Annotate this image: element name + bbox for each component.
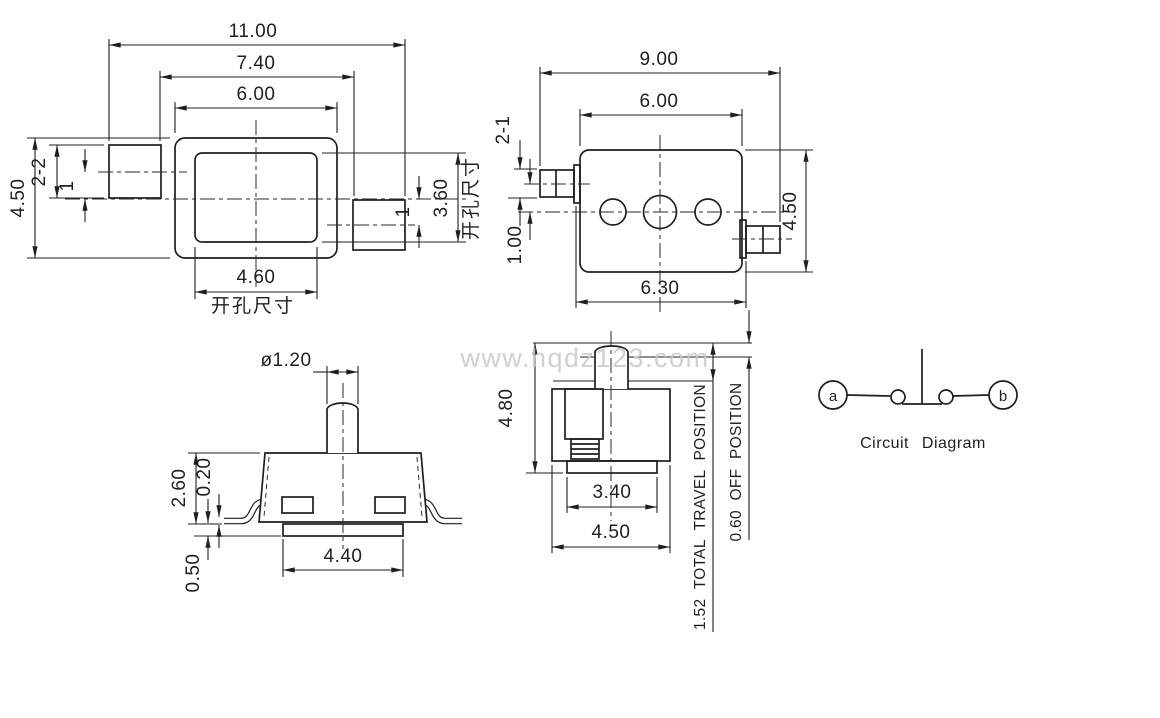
watermark: www.hqdz123.com (459, 343, 709, 373)
dim-pin-offset: 1.00 (505, 226, 526, 265)
dim-base-height: 0.50 (183, 554, 204, 593)
dim-cutout-width: 4.60 (237, 267, 276, 288)
dim-cutout-height: 3.60 (431, 179, 452, 218)
dim-front-base-width: 4.40 (324, 546, 363, 567)
side-base (567, 461, 657, 473)
dim-tab-span: 6.30 (641, 278, 680, 299)
dim-pin-body-width-lines (580, 109, 742, 146)
dim-pin-body-height: 4.50 (780, 192, 801, 231)
dim-pin-size-lines (508, 140, 537, 226)
switch-drawing-canvas: 11.00 7.40 6.00 4.50 2-2 1 (0, 0, 1160, 718)
cutout-label-right: 开孔尺寸 (460, 156, 482, 240)
dim-offset-right: 1 (393, 206, 414, 217)
dim-overall-width: 11.00 (229, 21, 278, 42)
contact-node-right (939, 390, 953, 404)
travel-note: 1.52 TOTAL TRAVEL POSITION (692, 384, 709, 630)
top-view-body-outline (109, 138, 405, 258)
pin-view-body-outline (580, 150, 742, 272)
dim-pin-overall-width: 9.00 (640, 49, 679, 70)
dim-pin-body-width: 6.00 (640, 91, 679, 112)
dim-pin-size: 2-1 (493, 116, 514, 145)
dim-offset-left: 1 (57, 180, 78, 191)
front-view: ø1.20 2.60 0.20 0.50 4.40 (169, 350, 462, 592)
contact-node-left (891, 390, 905, 404)
dim-pad-size: 2-2 (29, 158, 50, 187)
dim-pad-span: 7.40 (237, 53, 276, 74)
circuit-caption: Circuit Diagram (860, 435, 986, 452)
dim-front-body-height: 2.60 (169, 469, 190, 508)
top-view-cutout-layout: 11.00 7.40 6.00 4.50 2-2 1 (8, 21, 482, 317)
dim-stem-diameter: ø1.20 (260, 350, 311, 371)
dim-stem-diameter-lines (313, 366, 358, 404)
dim-total-height: 4.80 (496, 389, 517, 428)
terminal-a-label: a (829, 388, 838, 405)
dim-body-width: 6.00 (237, 84, 276, 105)
dim-body-height: 4.50 (8, 179, 29, 218)
dim-lead-thickness: 0.20 (194, 458, 215, 497)
pin-view: 9.00 6.00 2-1 1.00 4.50 6 (493, 49, 813, 312)
cutout-label-bottom: 开孔尺寸 (211, 295, 295, 317)
off-note: 0.60 OFF POSITION (728, 383, 745, 542)
terminal-b-label: b (999, 388, 1007, 405)
dim-side-base-width: 3.40 (593, 482, 632, 503)
dim-side-body-width: 4.50 (592, 522, 631, 543)
engineering-drawing-page: 11.00 7.40 6.00 4.50 2-2 1 (0, 0, 1160, 718)
circuit-diagram: a b Circuit Diagram (819, 349, 1017, 452)
